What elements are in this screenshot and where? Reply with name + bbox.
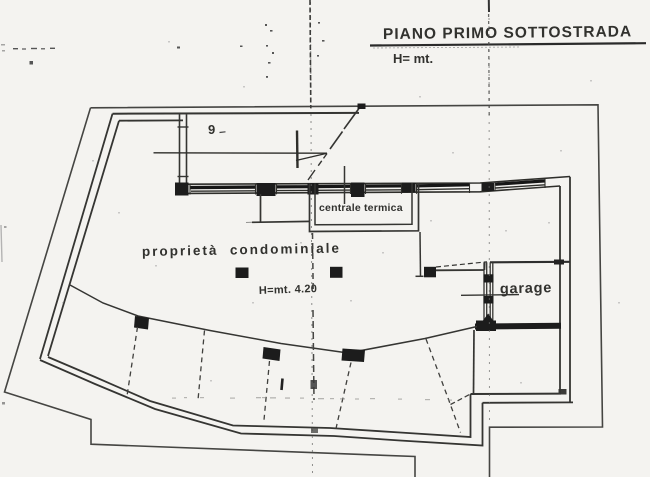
svg-text:proprietà condominiale: proprietà condominiale	[142, 241, 341, 259]
svg-text:9: 9	[208, 122, 215, 137]
svg-text:centrale termica: centrale termica	[319, 202, 403, 214]
svg-text:H=mt. 4.20: H=mt. 4.20	[259, 283, 318, 297]
svg-text:H= mt.: H= mt.	[393, 51, 433, 66]
svg-text:PIANO PRIMO SOTTOSTRADA: PIANO PRIMO SOTTOSTRADA	[383, 23, 632, 43]
